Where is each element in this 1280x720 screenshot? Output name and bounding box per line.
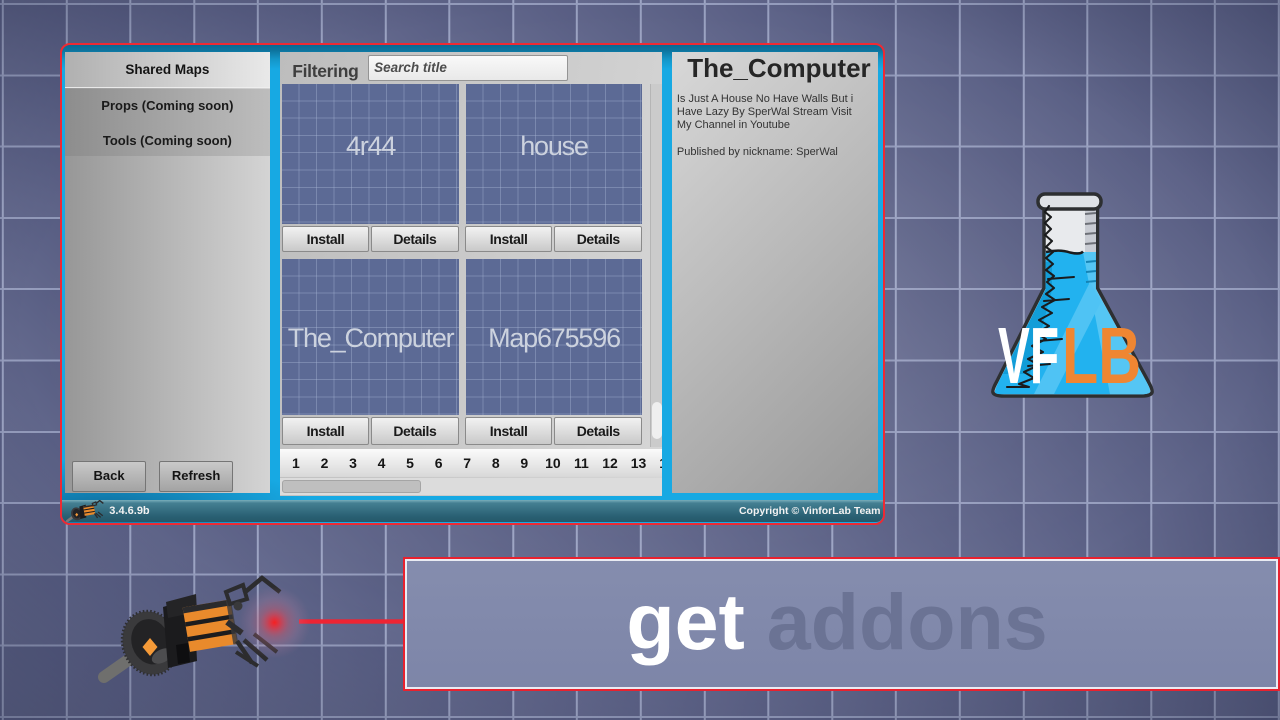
svg-text:LB: LB (1062, 311, 1141, 400)
svg-text:VF: VF (998, 311, 1059, 400)
